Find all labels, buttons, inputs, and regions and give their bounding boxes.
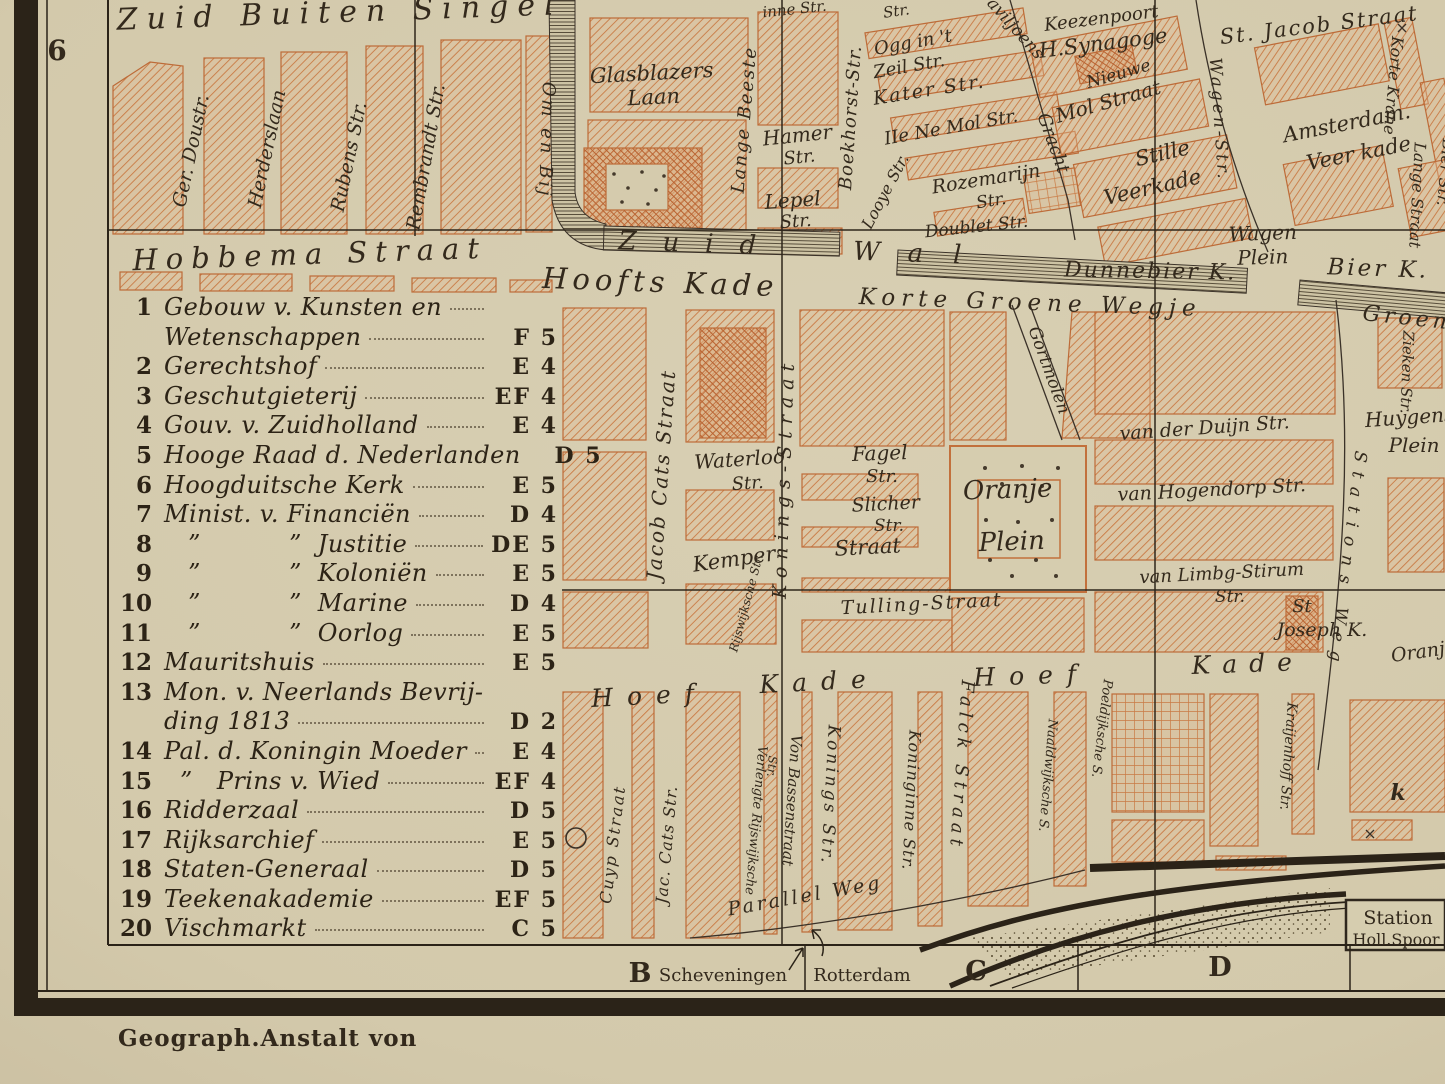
legend-grid-ref: EF 5 xyxy=(492,887,558,913)
street-label-v-limbg-stirum2: Str. xyxy=(1215,587,1245,607)
leader-dots xyxy=(419,515,484,517)
legend-name: Minist. v. Financiën xyxy=(164,500,411,528)
map-block xyxy=(632,692,654,938)
legend-row: 6Hoogduitsche KerkE 5 xyxy=(116,471,558,501)
legend-name: Rijksarchief xyxy=(164,826,314,854)
rotterdam-arrow xyxy=(812,930,823,956)
credit-line: Geograph.Anstalt von xyxy=(118,1025,417,1052)
legend-number: 10 xyxy=(116,590,152,617)
legend-grid-ref: D 5 xyxy=(492,798,558,824)
legend-row: 1Gebouw v. Kunsten en xyxy=(116,293,558,323)
map-block xyxy=(1210,694,1258,846)
legend-row: 12MauritshuisE 5 xyxy=(116,648,558,678)
frame-bar-bottom xyxy=(14,998,1445,1016)
street-label-fagel2: Str. xyxy=(866,466,898,487)
station-label2: Holl.Spoor xyxy=(1352,930,1439,949)
street-label-kemper: Kemper xyxy=(690,541,779,577)
legend-number: 14 xyxy=(116,738,152,765)
park-outline xyxy=(950,446,1086,592)
legend-number: 19 xyxy=(116,886,152,913)
street-label-hobbema-straat: Hobbema Straat xyxy=(131,231,488,277)
legend-number: 13 xyxy=(116,679,152,706)
legend-grid-ref: F 5 xyxy=(492,325,558,351)
street-label-lepel-str: Lepel xyxy=(763,186,822,214)
legend-row: 3GeschutgieterijEF 4 xyxy=(116,382,558,412)
grid-col-label-c: C xyxy=(965,956,987,987)
legend-number: 11 xyxy=(116,620,152,647)
legend-row: 9 ” ” KoloniënE 5 xyxy=(116,559,558,589)
place-label-huygens-plein: Plein xyxy=(1388,433,1440,457)
legend-row: 11 ” ” OorlogE 5 xyxy=(116,619,558,649)
barracks-block xyxy=(1112,694,1204,812)
legend-grid-ref: D 2 xyxy=(492,709,558,735)
legend-row: 14Pal. d. Koningin MoederE 4 xyxy=(116,737,558,767)
legend-grid-ref: E 5 xyxy=(492,561,558,587)
legend-name: Mon. v. Neerlands Bevrij- xyxy=(164,678,483,706)
legend-name: ” ” Koloniën xyxy=(164,559,428,587)
legend-grid-ref: E 5 xyxy=(492,621,558,647)
legend-name: Wetenschappen xyxy=(164,323,361,351)
legend-name: Mauritshuis xyxy=(164,648,315,676)
map-block xyxy=(563,452,646,580)
station-label: Station xyxy=(1363,907,1432,929)
leader-dots xyxy=(416,604,484,606)
legend-grid-ref: E 5 xyxy=(492,828,558,854)
map-block xyxy=(758,12,838,125)
leader-dots xyxy=(411,634,484,636)
dest-label-rotterdam: Rotterdam xyxy=(813,965,910,986)
legend-grid-ref: E 5 xyxy=(492,473,558,499)
street-label-hoef-west: Hoef xyxy=(589,678,708,713)
leader-dots xyxy=(427,426,484,428)
street-label-glasblazers-laan2: Laan xyxy=(626,84,681,111)
legend-row: 17RijksarchiefE 5 xyxy=(116,826,558,856)
street-label-waterloo: Waterloo xyxy=(693,444,785,474)
legend-name: ” ” Oorlog xyxy=(164,619,403,647)
legend-name: Staten-Generaal xyxy=(164,855,369,883)
legend-grid-ref: EF 4 xyxy=(492,769,558,795)
legend-row: 13Mon. v. Neerlands Bevrij- xyxy=(116,678,558,708)
canal-label-wal: Wal xyxy=(853,237,992,272)
map-block xyxy=(968,692,1028,906)
grid-row-label: 6 xyxy=(47,34,66,67)
street-label-jacob-cats-straat: Jacob Cats Straat xyxy=(641,368,680,585)
legend-number: 15 xyxy=(116,768,152,795)
street-label-verlengte-str: Str. xyxy=(764,755,780,777)
legend-name: ” ” Justitie xyxy=(164,530,407,558)
map-block xyxy=(1352,820,1412,840)
legend-name: ” Prins v. Wied xyxy=(164,767,380,795)
map-block xyxy=(686,490,774,540)
map-block xyxy=(113,62,183,234)
legend-number: 7 xyxy=(116,501,152,528)
legend-row: WetenschappenF 5 xyxy=(116,323,558,353)
street-label-boekhorst-str: Boekhorst-Str. xyxy=(835,44,866,191)
map-block xyxy=(918,692,942,926)
frame-bar-left xyxy=(14,0,38,1016)
legend-row: 10 ” ” MarineD 4 xyxy=(116,589,558,619)
legend-name: Hooge Raad d. Nederlanden xyxy=(164,441,521,469)
legend-number: 9 xyxy=(116,560,152,587)
map-block xyxy=(200,274,292,291)
map-block xyxy=(563,308,646,440)
legend-number: 18 xyxy=(116,856,152,883)
street-label-lepel-str2: Str. xyxy=(779,210,812,233)
legend-name: Vischmarkt xyxy=(164,914,307,942)
legend-grid-ref: D 5 xyxy=(492,857,558,883)
legend-row: 19TeekenakademieEF 5 xyxy=(116,885,558,915)
place-label-st-joseph: St xyxy=(1292,596,1312,617)
street-label-poeldijksche: Poeldijksche S. xyxy=(1088,677,1115,778)
leader-dots xyxy=(436,574,484,576)
canal-label-zuid: Zuid xyxy=(617,226,783,262)
street-label-zuid-buiten-singel: Zuid Buiten Singel xyxy=(115,0,563,38)
street-label-looye-str: Looye Str. xyxy=(857,151,913,233)
legend-grid-ref: EF 4 xyxy=(492,384,558,410)
canal-label-dunnebier: Dunnebier K. xyxy=(1063,257,1237,285)
grid-col-label-d: D xyxy=(1208,952,1231,983)
leader-dots xyxy=(365,397,484,399)
street-label-oranje-edge: Oranje xyxy=(1390,636,1445,667)
legend-name: ding 1813 xyxy=(164,707,290,735)
legend-grid-ref: E 5 xyxy=(492,650,558,676)
leader-dots xyxy=(369,338,484,340)
place-label-k: k xyxy=(1390,780,1405,806)
place-label-st-joseph2: Joseph K. xyxy=(1273,619,1368,641)
leader-dots xyxy=(307,811,484,813)
leader-dots xyxy=(450,308,484,310)
map-block xyxy=(412,278,496,292)
street-label-kemper-straat: Straat xyxy=(834,533,902,560)
legend-number: 16 xyxy=(116,797,152,824)
legend-grid-ref: D 4 xyxy=(492,591,558,617)
legend-number: 17 xyxy=(116,827,152,854)
place-label-oranje-plein: Plein xyxy=(977,526,1045,558)
leader-dots xyxy=(322,841,484,843)
street-label-kade-east: Kade xyxy=(1190,647,1304,680)
street-label-waterloo2: Str. xyxy=(731,472,764,495)
map-block xyxy=(1112,820,1204,862)
street-label-str-top: Str. xyxy=(882,0,911,22)
street-label-hoef-east: Hoef xyxy=(972,659,1091,692)
place-label-wagen-plein: Wagen xyxy=(1228,220,1297,246)
street-label-hamer-str2: Str. xyxy=(782,145,816,169)
street-label-jac-cats-str: Jac. Cats Str. xyxy=(652,784,682,907)
legend-name: ” ” Marine xyxy=(164,589,408,617)
antique-city-map-sheet: Zuid Buiten Singel Ger. Doustr. Herdersl… xyxy=(0,0,1445,1084)
legend-number: 3 xyxy=(116,383,152,410)
street-label-hoofts-kade: Hoofts Kade xyxy=(541,261,779,303)
legend-number: 20 xyxy=(116,915,152,942)
legend-grid-ref: E 4 xyxy=(492,739,558,765)
courtyard xyxy=(606,164,668,210)
legend-grid-ref: E 4 xyxy=(492,413,558,439)
legend-row: 15 ” Prins v. WiedEF 4 xyxy=(116,767,558,797)
legend-number: 4 xyxy=(116,412,152,439)
place-label-wagen-plein2: Plein xyxy=(1236,244,1289,270)
leader-dots xyxy=(475,752,484,754)
dest-label-scheveningen: Scheveningen xyxy=(659,965,788,986)
map-block xyxy=(441,40,521,234)
map-block xyxy=(563,592,648,648)
map-legend: 1Gebouw v. Kunsten en WetenschappenF 5 2… xyxy=(116,293,558,944)
legend-number: 8 xyxy=(116,531,152,558)
legend-grid-ref: E 4 xyxy=(492,354,558,380)
legend-row: 7Minist. v. FinanciënD 4 xyxy=(116,500,558,530)
leader-dots xyxy=(388,782,484,784)
legend-number: 12 xyxy=(116,649,152,676)
legend-row: 8 ” ” JustitieDE 5 xyxy=(116,530,558,560)
leader-dots xyxy=(382,900,484,902)
leader-dots xyxy=(413,486,484,488)
building-block xyxy=(700,328,766,438)
legend-name: Hoogduitsche Kerk xyxy=(164,471,405,499)
canal-label-bier-k: Bier K. xyxy=(1326,254,1430,284)
leader-dots xyxy=(298,722,484,724)
legend-grid-ref: DE 5 xyxy=(491,532,558,558)
map-block xyxy=(1095,506,1333,560)
legend-number: 1 xyxy=(116,294,152,321)
legend-name: Pal. d. Koningin Moeder xyxy=(164,737,467,765)
street-label-om-en-bij: Om en Bij xyxy=(534,81,559,199)
legend-name: Teekenakademie xyxy=(164,885,374,913)
legend-grid-ref: D 4 xyxy=(492,502,558,528)
leader-dots xyxy=(315,929,484,931)
legend-name: Geschutgieterij xyxy=(164,382,357,410)
legend-number: 6 xyxy=(116,472,152,499)
legend-grid-ref: D 5 xyxy=(537,443,603,469)
leader-dots xyxy=(415,545,483,547)
legend-number: 2 xyxy=(116,353,152,380)
leader-dots xyxy=(325,367,484,369)
street-label-fagel: Fagel xyxy=(851,440,908,466)
legend-row: 5Hooge Raad d. NederlandenD 5 xyxy=(116,441,558,471)
map-block xyxy=(950,312,1006,440)
street-label-zieken-str: Zieken Str. xyxy=(1397,329,1418,414)
legend-row: 18Staten-GeneraalD 5 xyxy=(116,855,558,885)
street-label-v-limbg-stirum: van Limbg-Stirum xyxy=(1139,559,1305,589)
legend-row: 4Gouv. v. ZuidhollandE 4 xyxy=(116,411,558,441)
legend-row: ding 1813D 2 xyxy=(116,707,558,737)
scheveningen-arrow xyxy=(789,948,803,970)
leader-dots xyxy=(377,870,484,872)
leader-dots xyxy=(323,663,484,665)
map-block xyxy=(800,310,944,446)
legend-grid-ref: C 5 xyxy=(492,916,558,942)
place-label-oranje: Oranje xyxy=(962,473,1052,506)
legend-row: 20VischmarktC 5 xyxy=(116,914,558,944)
legend-number: 5 xyxy=(116,442,152,469)
map-block xyxy=(1095,312,1335,414)
legend-name: Gerechtshof xyxy=(164,352,317,380)
map-block xyxy=(310,276,394,291)
legend-name: Gouv. v. Zuidholland xyxy=(164,411,419,439)
legend-row: 16RidderzaalD 5 xyxy=(116,796,558,826)
oranje-plein-park xyxy=(950,446,1086,592)
grid-col-label-b: B xyxy=(629,958,652,989)
map-block xyxy=(802,620,952,652)
street-label-slicher: Slicher xyxy=(851,491,922,517)
legend-name: Ridderzaal xyxy=(164,796,299,824)
legend-name: Gebouw v. Kunsten en xyxy=(164,293,442,321)
map-block xyxy=(1388,478,1444,572)
legend-row: 2GerechtshofE 4 xyxy=(116,352,558,382)
